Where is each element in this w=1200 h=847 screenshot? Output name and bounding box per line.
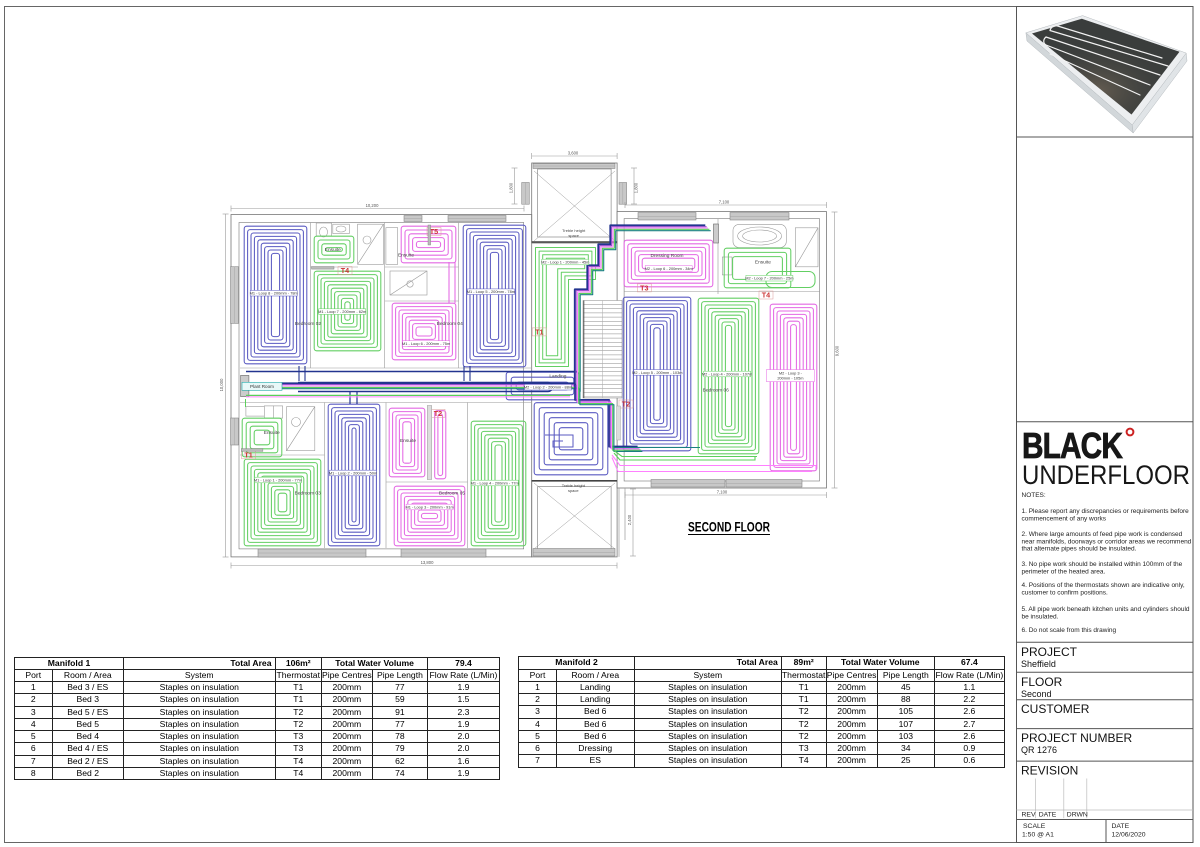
svg-text:M1 - Loop 5 - 200mm - 78m: M1 - Loop 5 - 200mm - 78m [467,289,515,294]
svg-text:M2 - Loop 6 - 200mm - 34m: M2 - Loop 6 - 200mm - 34m [645,266,693,271]
svg-text:2. Where large amounts of feed: 2. Where large amounts of feed pipe work… [1022,531,1183,538]
svg-text:9,600: 9,600 [835,345,840,356]
svg-text:Ensuite: Ensuite [398,252,414,258]
svg-text:commencement of any works: commencement of any works [1022,515,1107,522]
svg-text:UNDERFLOOR: UNDERFLOOR [1022,460,1190,490]
svg-text:5. All pipe work beneath kitch: 5. All pipe work beneath kitchen units a… [1022,606,1190,613]
svg-text:SCALE: SCALE [1023,823,1046,830]
svg-text:T1: T1 [535,328,543,337]
svg-text:near manifolds, doorways or co: near manifolds, doorways or corridor are… [1022,538,1192,545]
svg-text:M2 - Loop 5 - 200mm - 103m: M2 - Loop 5 - 200mm - 103m [632,370,682,375]
svg-text:perimeter of the heated area.: perimeter of the heated area. [1022,568,1106,575]
svg-text:Ensuite: Ensuite [325,247,341,253]
svg-text:CUSTOMER: CUSTOMER [1021,702,1090,716]
svg-text:customer to confirm positions.: customer to confirm positions. [1022,589,1109,596]
svg-text:Bedroom 05: Bedroom 05 [439,491,465,497]
svg-text:T4: T4 [341,266,349,275]
svg-text:M1 - Loop 4 - 200mm - 77m: M1 - Loop 4 - 200mm - 77m [471,480,519,485]
svg-text:7,100: 7,100 [717,490,728,495]
svg-text:Bedroom 06: Bedroom 06 [703,388,729,394]
svg-text:10,200: 10,200 [366,203,379,208]
svg-text:M2 - Loop 2 - 200mm - 88m: M2 - Loop 2 - 200mm - 88m [524,385,572,390]
svg-text:NOTES:: NOTES: [1022,492,1046,499]
svg-text:PROJECT NUMBER: PROJECT NUMBER [1021,731,1132,745]
svg-text:PROJECT: PROJECT [1021,645,1078,659]
svg-text:Ensuite: Ensuite [264,430,280,436]
svg-text:T3: T3 [640,284,648,293]
svg-text:200mm - 105m: 200mm - 105m [777,376,803,381]
svg-text:M1 - Loop 7 - 200mm - 62m: M1 - Loop 7 - 200mm - 62m [318,309,366,314]
svg-text:QR 1276: QR 1276 [1021,745,1057,755]
svg-text:M1 - Loop 1 - 200mm - 77m: M1 - Loop 1 - 200mm - 77m [254,477,302,482]
svg-text:M1 - Loop 6 - 200mm - 75m: M1 - Loop 6 - 200mm - 75m [402,341,450,346]
svg-text:3. No pipe work should be inst: 3. No pipe work should be installed with… [1022,561,1183,568]
svg-text:T5: T5 [430,227,438,236]
svg-text:Bedroom 03: Bedroom 03 [295,491,321,497]
svg-text:T1: T1 [244,450,252,459]
svg-text:SECOND FLOOR: SECOND FLOOR [688,520,770,535]
svg-text:1. Please report any discrepan: 1. Please report any discrepancies or re… [1022,508,1190,515]
svg-text:Ensuite: Ensuite [400,438,416,444]
svg-text:DATE: DATE [1039,812,1057,819]
svg-text:FLOOR: FLOOR [1021,675,1063,689]
svg-text:Bedroom 04: Bedroom 04 [437,321,463,327]
svg-text:M1 - Loop 2 - 200mm - 50m: M1 - Loop 2 - 200mm - 50m [329,470,377,475]
svg-text:M2 - Loop 4 - 200mm - 107m: M2 - Loop 4 - 200mm - 107m [702,371,752,376]
svg-text:M1 - Loop 8 - 200mm - 78m: M1 - Loop 8 - 200mm - 78m [250,291,298,296]
svg-text:7,100: 7,100 [719,200,730,205]
svg-text:Landing: Landing [549,374,566,380]
svg-text:Bedroom 02: Bedroom 02 [295,321,321,327]
svg-text:M2 - Loop 7 - 200mm - 25m: M2 - Loop 7 - 200mm - 25m [745,276,793,281]
svg-text:DRWN: DRWN [1067,812,1088,819]
svg-text:Plant Room: Plant Room [250,384,274,389]
svg-text:Dressing Room: Dressing Room [650,253,683,259]
svg-text:REV: REV [1022,812,1036,819]
svg-text:REVISION: REVISION [1021,764,1078,778]
svg-text:Ensuite: Ensuite [755,259,771,265]
svg-text:T4: T4 [762,291,770,300]
svg-text:10,000: 10,000 [219,378,224,391]
svg-text:1,800: 1,800 [634,182,639,193]
svg-text:T2: T2 [434,409,442,418]
svg-text:M2 - Loop 1 - 200mm - 45m: M2 - Loop 1 - 200mm - 45m [541,259,589,264]
svg-text:1:50 @ A1: 1:50 @ A1 [1022,832,1054,839]
svg-text:Second: Second [1021,689,1052,699]
svg-text:that alternate pipes should be: that alternate pipes should be insulated… [1022,546,1137,553]
svg-text:Sheffield: Sheffield [1021,659,1056,669]
svg-text:1,800: 1,800 [508,182,513,193]
svg-text:13,800: 13,800 [421,560,434,565]
svg-text:3,600: 3,600 [568,150,579,155]
svg-text:space: space [568,233,579,238]
svg-text:2,400: 2,400 [627,514,632,525]
svg-text:M1 - Loop 3 - 200mm - 91m: M1 - Loop 3 - 200mm - 91m [405,504,453,509]
svg-text:be insulated.: be insulated. [1022,613,1059,620]
svg-text:6. Do not scale from this draw: 6. Do not scale from this drawing [1022,627,1117,634]
svg-text:T2: T2 [622,400,630,409]
svg-text:space: space [568,488,579,493]
svg-text:4. Positions of the thermostat: 4. Positions of the thermostats shown ar… [1022,582,1185,589]
svg-text:12/06/2020: 12/06/2020 [1112,832,1146,839]
svg-text:DATE: DATE [1112,823,1130,830]
